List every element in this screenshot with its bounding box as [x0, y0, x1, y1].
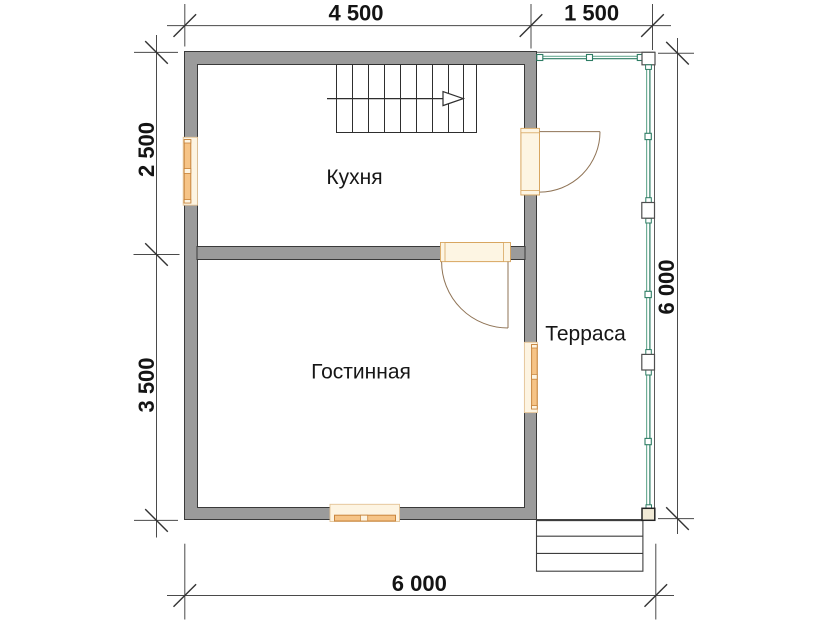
svg-text:Кухня: Кухня [326, 166, 382, 189]
svg-text:1 500: 1 500 [564, 1, 619, 26]
svg-text:6 000: 6 000 [392, 571, 447, 596]
svg-text:3 500: 3 500 [134, 357, 159, 412]
svg-text:6 000: 6 000 [654, 259, 679, 314]
svg-text:Терраса: Терраса [545, 323, 626, 346]
svg-text:4 500: 4 500 [328, 1, 383, 26]
svg-text:Гостинная: Гостинная [311, 361, 411, 384]
svg-text:2 500: 2 500 [134, 122, 159, 177]
